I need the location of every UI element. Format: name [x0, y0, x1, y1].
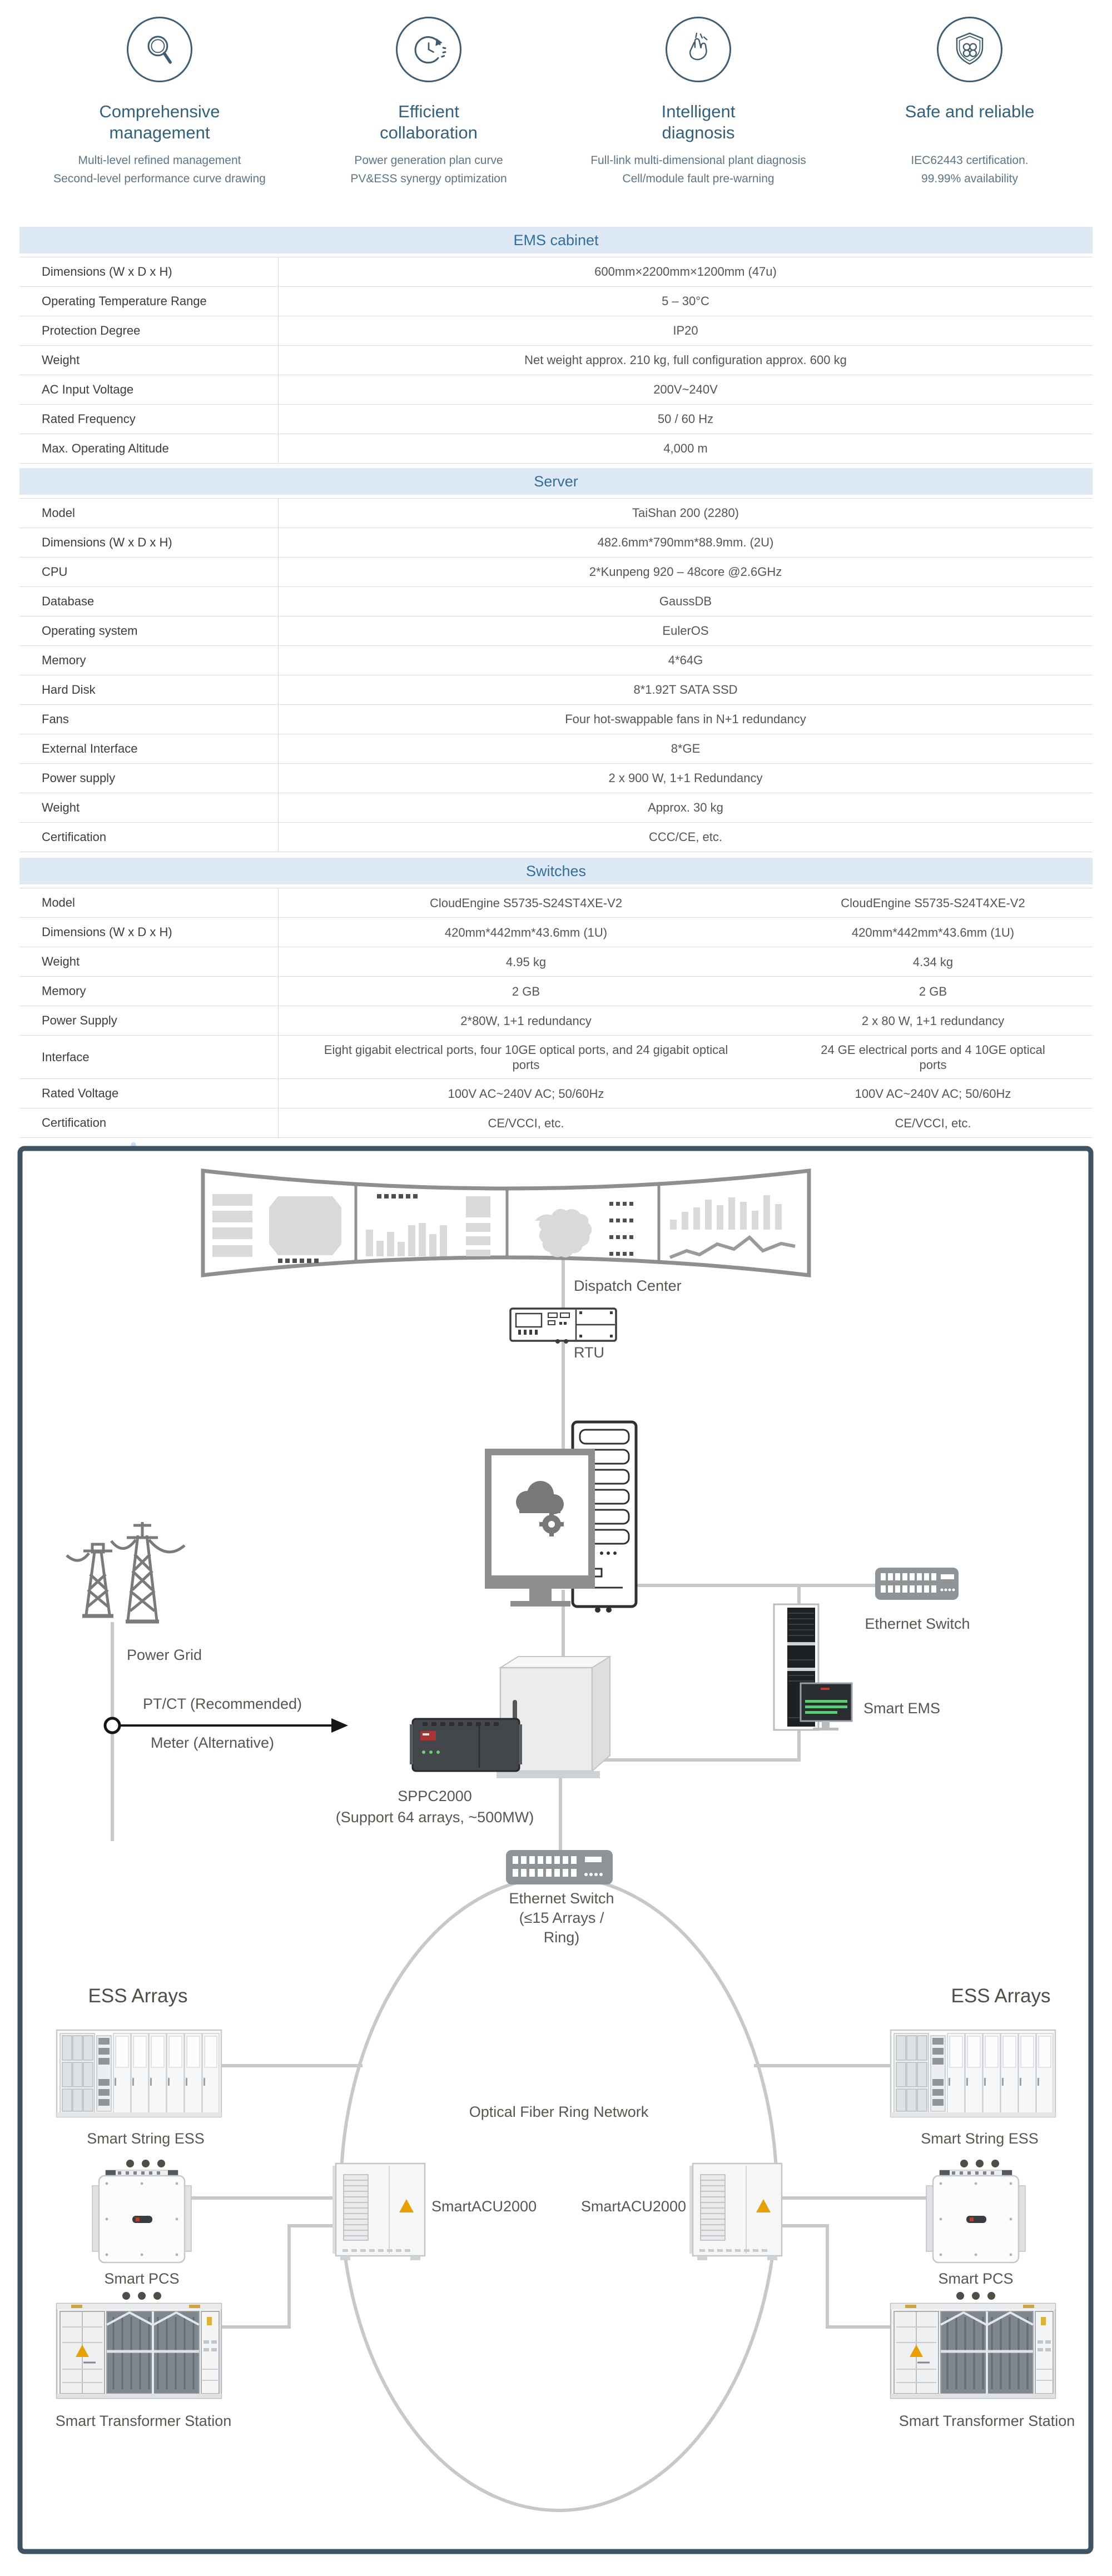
row-value-1: CloudEngine S5735-S24ST4XE-V2: [279, 896, 773, 911]
feature-title: Comprehensive management: [40, 101, 279, 146]
table-row: CertificationCCC/CE, etc.: [19, 823, 1093, 852]
row-value: Net weight approx. 210 kg, full configur…: [279, 353, 1093, 367]
smart-ems-label: Smart EMS: [863, 1700, 940, 1717]
optical-ring-label: Optical Fiber Ring Network: [469, 2103, 649, 2120]
server-table: ModelTaiShan 200 (2280) Dimensions (W x …: [19, 498, 1093, 852]
row-value-2: 2 GB: [773, 984, 1093, 999]
string-ess-left-label: Smart String ESS: [87, 2130, 205, 2147]
row-value: 482.6mm*790mm*88.9mm. (2U): [279, 535, 1093, 550]
row-value: 2*Kunpeng 920 – 48core @2.6GHz: [279, 565, 1093, 579]
feature-desc-line2: PV&ESS synergy optimization: [309, 170, 548, 188]
smart-pcs-left-icon: [92, 2170, 191, 2262]
table-row: CertificationCE/VCCI, etc.CE/VCCI, etc.: [19, 1108, 1093, 1138]
row-value-2: CE/VCCI, etc.: [773, 1116, 1093, 1131]
row-label: Certification: [19, 1108, 279, 1137]
table-row: DatabaseGaussDB: [19, 587, 1093, 616]
smart-pcs-right-icon: [926, 2170, 1025, 2262]
row-value: 8*1.92T SATA SSD: [279, 683, 1093, 697]
sppc-rack-server: [413, 1719, 519, 1771]
feature-desc-line2: Second-level performance curve drawing: [40, 170, 279, 188]
feature-title: Efficient collaboration: [309, 101, 548, 146]
row-label: Memory: [19, 977, 279, 1006]
row-value: 5 – 30°C: [279, 294, 1093, 309]
row-label: Max. Operating Altitude: [19, 434, 279, 463]
table-row: Power Supply2*80W, 1+1 redundancy2 x 80 …: [19, 1006, 1093, 1036]
feature-title: Intelligent diagnosis: [579, 101, 818, 146]
ellipsis-dots: [960, 2160, 999, 2167]
ellipsis-dots: [122, 2292, 161, 2300]
ems-computer-icon: [485, 1422, 636, 1613]
row-value: 200V~240V: [279, 382, 1093, 397]
table-row: Rated Frequency50 / 60 Hz: [19, 405, 1093, 434]
feature-desc-line1: IEC62443 certification.: [850, 151, 1089, 170]
table-row: CPU2*Kunpeng 920 – 48core @2.6GHz: [19, 558, 1093, 587]
row-label: Protection Degree: [19, 316, 279, 345]
row-label: Weight: [19, 346, 279, 375]
smart-string-ess-left-icon: [57, 2030, 221, 2117]
ethernet-switch-bottom-icon: [506, 1850, 613, 1884]
feature-desc: Full-link multi-dimensional plant diagno…: [579, 151, 818, 188]
table-row: Max. Operating Altitude4,000 m: [19, 434, 1093, 464]
table-row: AC Input Voltage200V~240V: [19, 375, 1093, 405]
row-value: 4,000 m: [279, 441, 1093, 456]
row-label: Model: [19, 888, 279, 917]
row-label: Interface: [19, 1036, 279, 1078]
row-value-1: 420mm*442mm*43.6mm (1U): [279, 925, 773, 940]
row-label: Model: [19, 499, 279, 528]
table-row: Power supply2 x 900 W, 1+1 Redundancy: [19, 764, 1093, 793]
feature-desc-line1: Full-link multi-dimensional plant diagno…: [579, 151, 818, 170]
smartacu2000-left-icon: [332, 2164, 425, 2260]
row-label: Power supply: [19, 764, 279, 793]
ellipsis-dots: [126, 2160, 165, 2167]
snap-finger-icon: [666, 17, 731, 82]
row-label: Fans: [19, 705, 279, 734]
row-value: Four hot-swappable fans in N+1 redundanc…: [279, 712, 1093, 727]
row-value-1: CE/VCCI, etc.: [279, 1116, 773, 1131]
table-row: Operating systemEulerOS: [19, 616, 1093, 646]
table-row: Weight4.95 kg4.34 kg: [19, 947, 1093, 977]
ess-arrays-left-heading: ESS Arrays: [88, 1985, 188, 2007]
row-label: Power Supply: [19, 1006, 279, 1035]
row-value-2: CloudEngine S5735-S24T4XE-V2: [773, 896, 1093, 911]
power-grid-label: Power Grid: [127, 1647, 202, 1663]
row-label: Dimensions (W x D x H): [19, 257, 279, 286]
row-value: IP20: [279, 324, 1093, 338]
feature-title-line2: management: [40, 122, 279, 143]
sppc2000-sublabel: (Support 64 arrays, ~500MW): [336, 1809, 534, 1826]
smartacu-left-label: SmartACU2000: [431, 2198, 537, 2215]
feature-efficient-collaboration: Efficient collaboration Power generation…: [309, 12, 548, 188]
table-row: External Interface8*GE: [19, 734, 1093, 764]
table-title-server: Server: [19, 468, 1093, 495]
row-label: Certification: [19, 823, 279, 852]
rtu-icon: [510, 1309, 616, 1344]
row-label: Weight: [19, 947, 279, 976]
row-label: Database: [19, 587, 279, 616]
row-label: External Interface: [19, 734, 279, 763]
row-value-2: 4.34 kg: [773, 954, 1093, 969]
row-value-1: 4.95 kg: [279, 954, 773, 969]
row-label: CPU: [19, 558, 279, 586]
row-label: Weight: [19, 793, 279, 822]
architecture-diagram: Dispatch Center RTU: [0, 1142, 1112, 2576]
ethernet-switch-right-icon: [875, 1568, 959, 1600]
ellipsis-dots: [956, 2292, 995, 2300]
ptct-label: PT/CT (Recommended): [143, 1695, 302, 1712]
cycle-clock-icon: [396, 17, 461, 82]
smart-pcs-right-label: Smart PCS: [938, 2270, 1013, 2287]
smart-transformer-left-label: Smart Transformer Station: [56, 2413, 232, 2429]
feature-title-line1: Safe and reliable: [850, 101, 1089, 122]
row-value-2: 24 GE electrical ports and 4 10GE optica…: [773, 1042, 1093, 1072]
row-value-1: 100V AC~240V AC; 50/60Hz: [279, 1086, 773, 1101]
row-label: Operating system: [19, 616, 279, 645]
feature-desc: Power generation plan curve PV&ESS syner…: [309, 151, 548, 188]
spec-tables: EMS cabinet Dimensions (W x D x H)600mm×…: [19, 227, 1093, 1138]
table-row: WeightNet weight approx. 210 kg, full co…: [19, 346, 1093, 375]
table-row: Rated Voltage100V AC~240V AC; 50/60Hz100…: [19, 1079, 1093, 1108]
smart-transformer-right-label: Smart Transformer Station: [899, 2413, 1075, 2429]
table-row: Dimensions (W x D x H)600mm×2200mm×1200m…: [19, 257, 1093, 287]
row-value: 8*GE: [279, 742, 1093, 756]
row-label: Dimensions (W x D x H): [19, 528, 279, 557]
table-row: WeightApprox. 30 kg: [19, 793, 1093, 823]
row-value: Approx. 30 kg: [279, 800, 1093, 815]
feature-desc: Multi-level refined management Second-le…: [40, 151, 279, 188]
smartacu-right-label: SmartACU2000: [581, 2198, 686, 2215]
feature-title-line2: diagnosis: [579, 122, 818, 143]
table-title-switches: Switches: [19, 858, 1093, 884]
feature-title: Safe and reliable: [850, 101, 1089, 146]
row-value-2: 100V AC~240V AC; 50/60Hz: [773, 1086, 1093, 1101]
smart-pcs-left-label: Smart PCS: [104, 2270, 179, 2287]
smartacu2000-right-icon: [689, 2164, 782, 2260]
sppc2000-label: SPPC2000: [398, 1788, 472, 1804]
table-row: Protection DegreeIP20: [19, 316, 1093, 346]
ess-arrays-right-heading: ESS Arrays: [951, 1985, 1051, 2007]
row-label: Rated Frequency: [19, 405, 279, 434]
feature-desc-line2: Cell/module fault pre-warning: [579, 170, 818, 188]
row-value-2: 2 x 80 W, 1+1 redundancy: [773, 1013, 1093, 1028]
row-value: 50 / 60 Hz: [279, 412, 1093, 426]
ethernet-switch-bottom-label2: (≤15 Arrays /: [519, 1909, 604, 1926]
switches-table: ModelCloudEngine S5735-S24ST4XE-V2CloudE…: [19, 888, 1093, 1138]
feature-title-line2: collaboration: [309, 122, 548, 143]
row-value-1: Eight gigabit electrical ports, four 10G…: [279, 1042, 773, 1072]
ems-table: Dimensions (W x D x H)600mm×2200mm×1200m…: [19, 257, 1093, 464]
table-title-ems: EMS cabinet: [19, 227, 1093, 253]
table-row: ModelTaiShan 200 (2280): [19, 499, 1093, 528]
feature-safe-reliable: Safe and reliable IEC62443 certification…: [850, 12, 1089, 188]
row-label: Operating Temperature Range: [19, 287, 279, 316]
row-label: AC Input Voltage: [19, 375, 279, 404]
row-label: Dimensions (W x D x H): [19, 918, 279, 947]
wall-panel-kpi: [212, 1194, 341, 1263]
row-value: EulerOS: [279, 624, 1093, 638]
meter-label: Meter (Alternative): [151, 1734, 274, 1751]
feature-desc: IEC62443 certification. 99.99% availabil…: [850, 151, 1089, 188]
ethernet-switch-bottom-label: Ethernet Switch: [509, 1890, 614, 1907]
feature-desc-line2: 99.99% availability: [850, 170, 1089, 188]
row-value: CCC/CE, etc.: [279, 830, 1093, 844]
table-row: Dimensions (W x D x H)482.6mm*790mm*88.9…: [19, 528, 1093, 558]
row-label: Memory: [19, 646, 279, 675]
table-row: ModelCloudEngine S5735-S24ST4XE-V2CloudE…: [19, 888, 1093, 918]
row-value: 600mm×2200mm×1200mm (47u): [279, 265, 1093, 279]
row-value: 2 x 900 W, 1+1 Redundancy: [279, 771, 1093, 785]
row-value-1: 2 GB: [279, 984, 773, 999]
table-row: FansFour hot-swappable fans in N+1 redun…: [19, 705, 1093, 734]
table-row: Dimensions (W x D x H)420mm*442mm*43.6mm…: [19, 918, 1093, 947]
row-label: Hard Disk: [19, 675, 279, 704]
rtu-label: RTU: [574, 1344, 604, 1361]
ethernet-switch-bottom-label3: Ring): [544, 1929, 580, 1946]
table-row: Memory2 GB2 GB: [19, 977, 1093, 1006]
feature-title-line1: Comprehensive: [40, 101, 279, 122]
table-row: Memory4*64G: [19, 646, 1093, 675]
shield-icon: [937, 17, 1002, 82]
ethernet-switch-right-label: Ethernet Switch: [865, 1615, 970, 1632]
feature-desc-line1: Power generation plan curve: [309, 151, 548, 170]
feature-title-line1: Intelligent: [579, 101, 818, 122]
row-value: 4*64G: [279, 653, 1093, 668]
row-value-1: 2*80W, 1+1 redundancy: [279, 1013, 773, 1028]
table-row: InterfaceEight gigabit electrical ports,…: [19, 1036, 1093, 1079]
string-ess-right-label: Smart String ESS: [921, 2130, 1039, 2147]
table-row: Operating Temperature Range5 – 30°C: [19, 287, 1093, 316]
row-label: Rated Voltage: [19, 1079, 279, 1108]
feature-comprehensive-management: Comprehensive management Multi-level ref…: [40, 12, 279, 188]
magnifier-icon: [127, 17, 192, 82]
smart-transformer-right-icon: [891, 2304, 1055, 2398]
row-value: TaiShan 200 (2280): [279, 506, 1093, 520]
row-value-2: 420mm*442mm*43.6mm (1U): [773, 925, 1093, 940]
dispatch-center-label: Dispatch Center: [574, 1277, 682, 1294]
table-row: Hard Disk8*1.92T SATA SSD: [19, 675, 1093, 705]
feature-title-line1: Efficient: [309, 101, 548, 122]
smart-string-ess-right-icon: [891, 2030, 1055, 2117]
feature-intelligent-diagnosis: Intelligent diagnosis Full-link multi-di…: [579, 12, 818, 188]
smart-transformer-left-icon: [57, 2304, 221, 2398]
row-value: GaussDB: [279, 594, 1093, 609]
feature-desc-line1: Multi-level refined management: [40, 151, 279, 170]
